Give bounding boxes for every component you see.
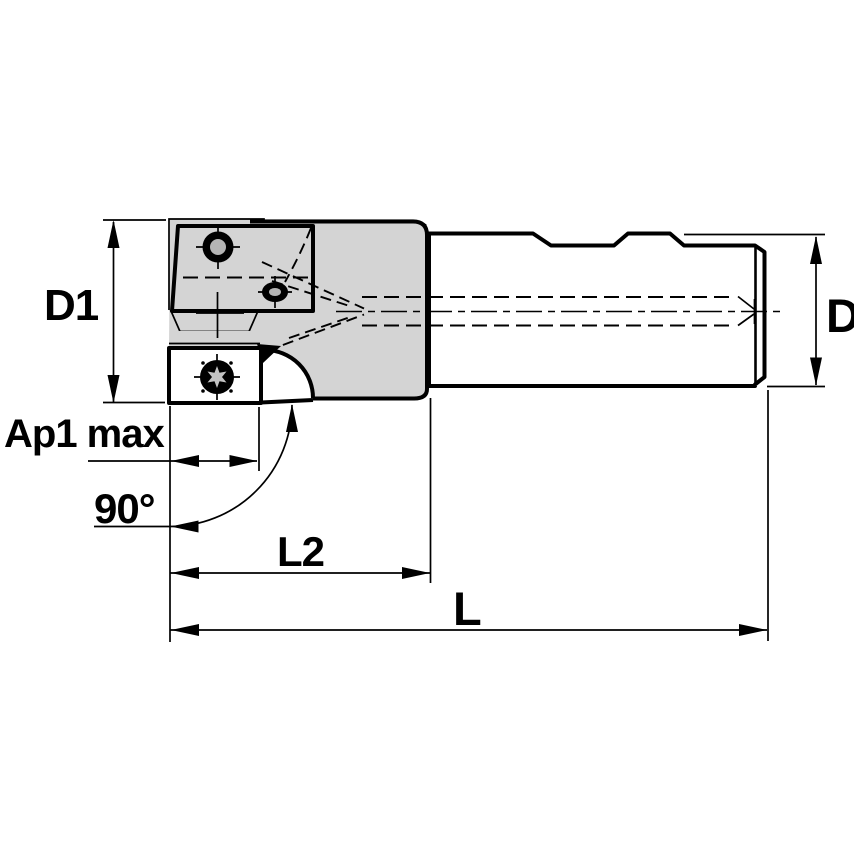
arrowhead: [230, 455, 258, 467]
shank-body: [429, 234, 765, 387]
arrowhead: [810, 236, 822, 264]
arrowhead: [171, 624, 199, 636]
dimension-d1: D1: [44, 220, 166, 403]
arrowhead: [171, 521, 199, 533]
torx-screw: [194, 354, 240, 400]
dimension-d: D: [684, 235, 854, 387]
dimension-l2: L2: [170, 398, 431, 583]
l-label: L: [453, 582, 481, 635]
shank: [421, 224, 765, 396]
arrowhead: [108, 375, 120, 403]
arrowhead: [810, 358, 822, 386]
arrowhead: [171, 567, 199, 579]
d1-label: D1: [44, 281, 99, 330]
arrowhead: [286, 404, 298, 432]
dimension-ap1-max: Ap1 max: [4, 407, 259, 471]
angle-90-label: 90°: [94, 485, 155, 532]
arrowhead: [402, 567, 430, 579]
arrowhead: [171, 455, 199, 467]
l2-label: L2: [277, 528, 324, 575]
arrowhead: [108, 220, 120, 248]
ap1-max-label: Ap1 max: [4, 412, 164, 456]
end-mill-technical-drawing: D1 Ap1 max 90° L2 L: [0, 0, 854, 854]
d-label: D: [826, 289, 854, 342]
arrowhead: [739, 624, 767, 636]
